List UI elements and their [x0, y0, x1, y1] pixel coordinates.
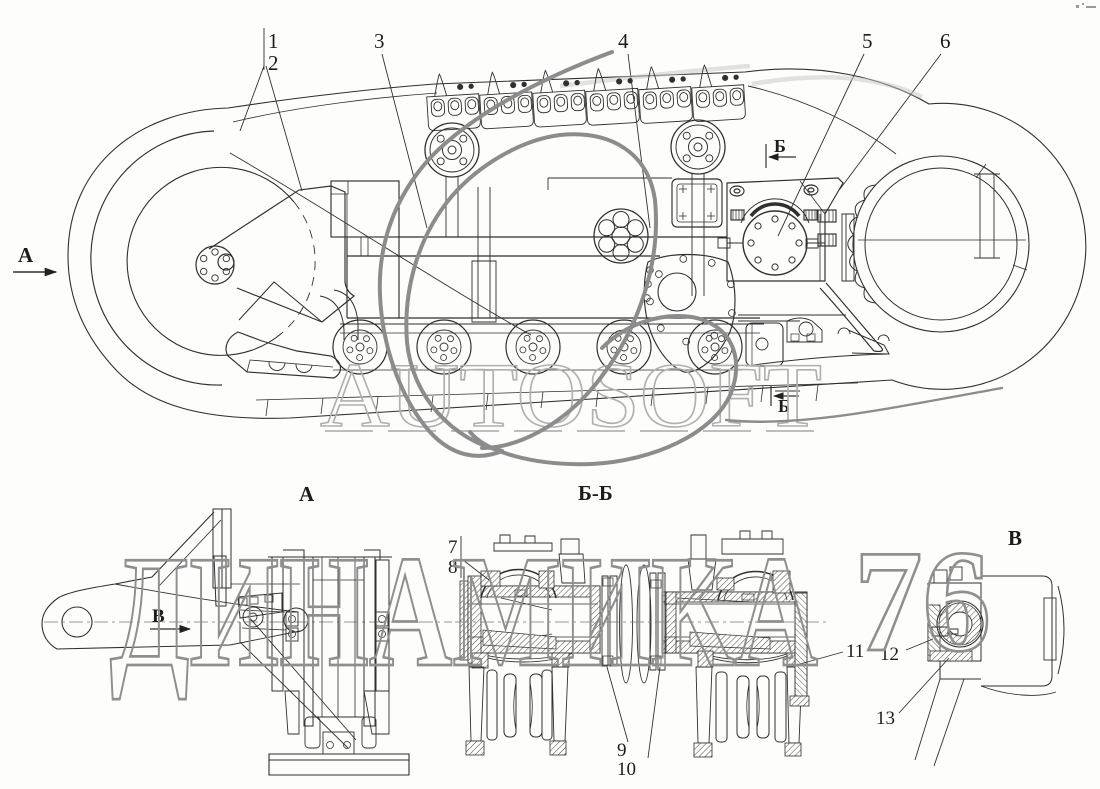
svg-text:1: 1	[268, 29, 279, 53]
svg-text:5: 5	[862, 29, 873, 53]
svg-text:Б-Б: Б-Б	[578, 481, 613, 505]
svg-text:76: 76	[854, 520, 991, 682]
svg-text:ДИНАМИКА: ДИНАМИКА	[110, 522, 818, 700]
svg-text:9: 9	[617, 740, 627, 761]
svg-text:4: 4	[618, 29, 629, 53]
svg-text:А: А	[18, 243, 34, 267]
svg-text:6: 6	[940, 29, 951, 53]
svg-text:А: А	[299, 482, 315, 506]
svg-text:В: В	[1008, 526, 1022, 550]
svg-text:13: 13	[876, 708, 895, 729]
svg-text:10: 10	[617, 759, 636, 780]
svg-text:3: 3	[374, 29, 385, 53]
svg-text:Б: Б	[774, 136, 786, 156]
svg-text:2: 2	[268, 51, 279, 75]
